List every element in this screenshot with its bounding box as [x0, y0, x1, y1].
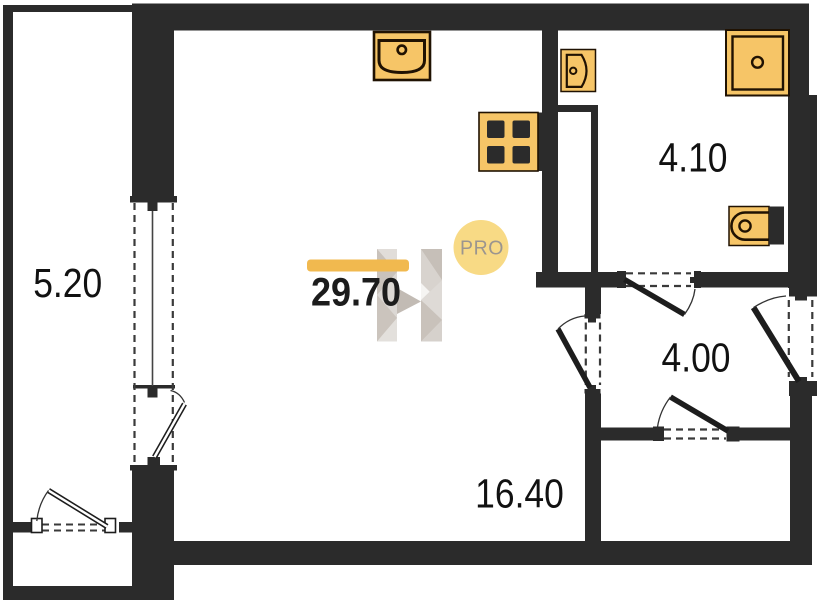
svg-text:16.40: 16.40 — [475, 472, 564, 517]
svg-text:4.10: 4.10 — [659, 136, 728, 181]
svg-text:4.00: 4.00 — [662, 336, 731, 381]
svg-text:29.70: 29.70 — [311, 271, 401, 315]
svg-text:PRO: PRO — [460, 237, 504, 260]
svg-text:5.20: 5.20 — [33, 262, 102, 307]
